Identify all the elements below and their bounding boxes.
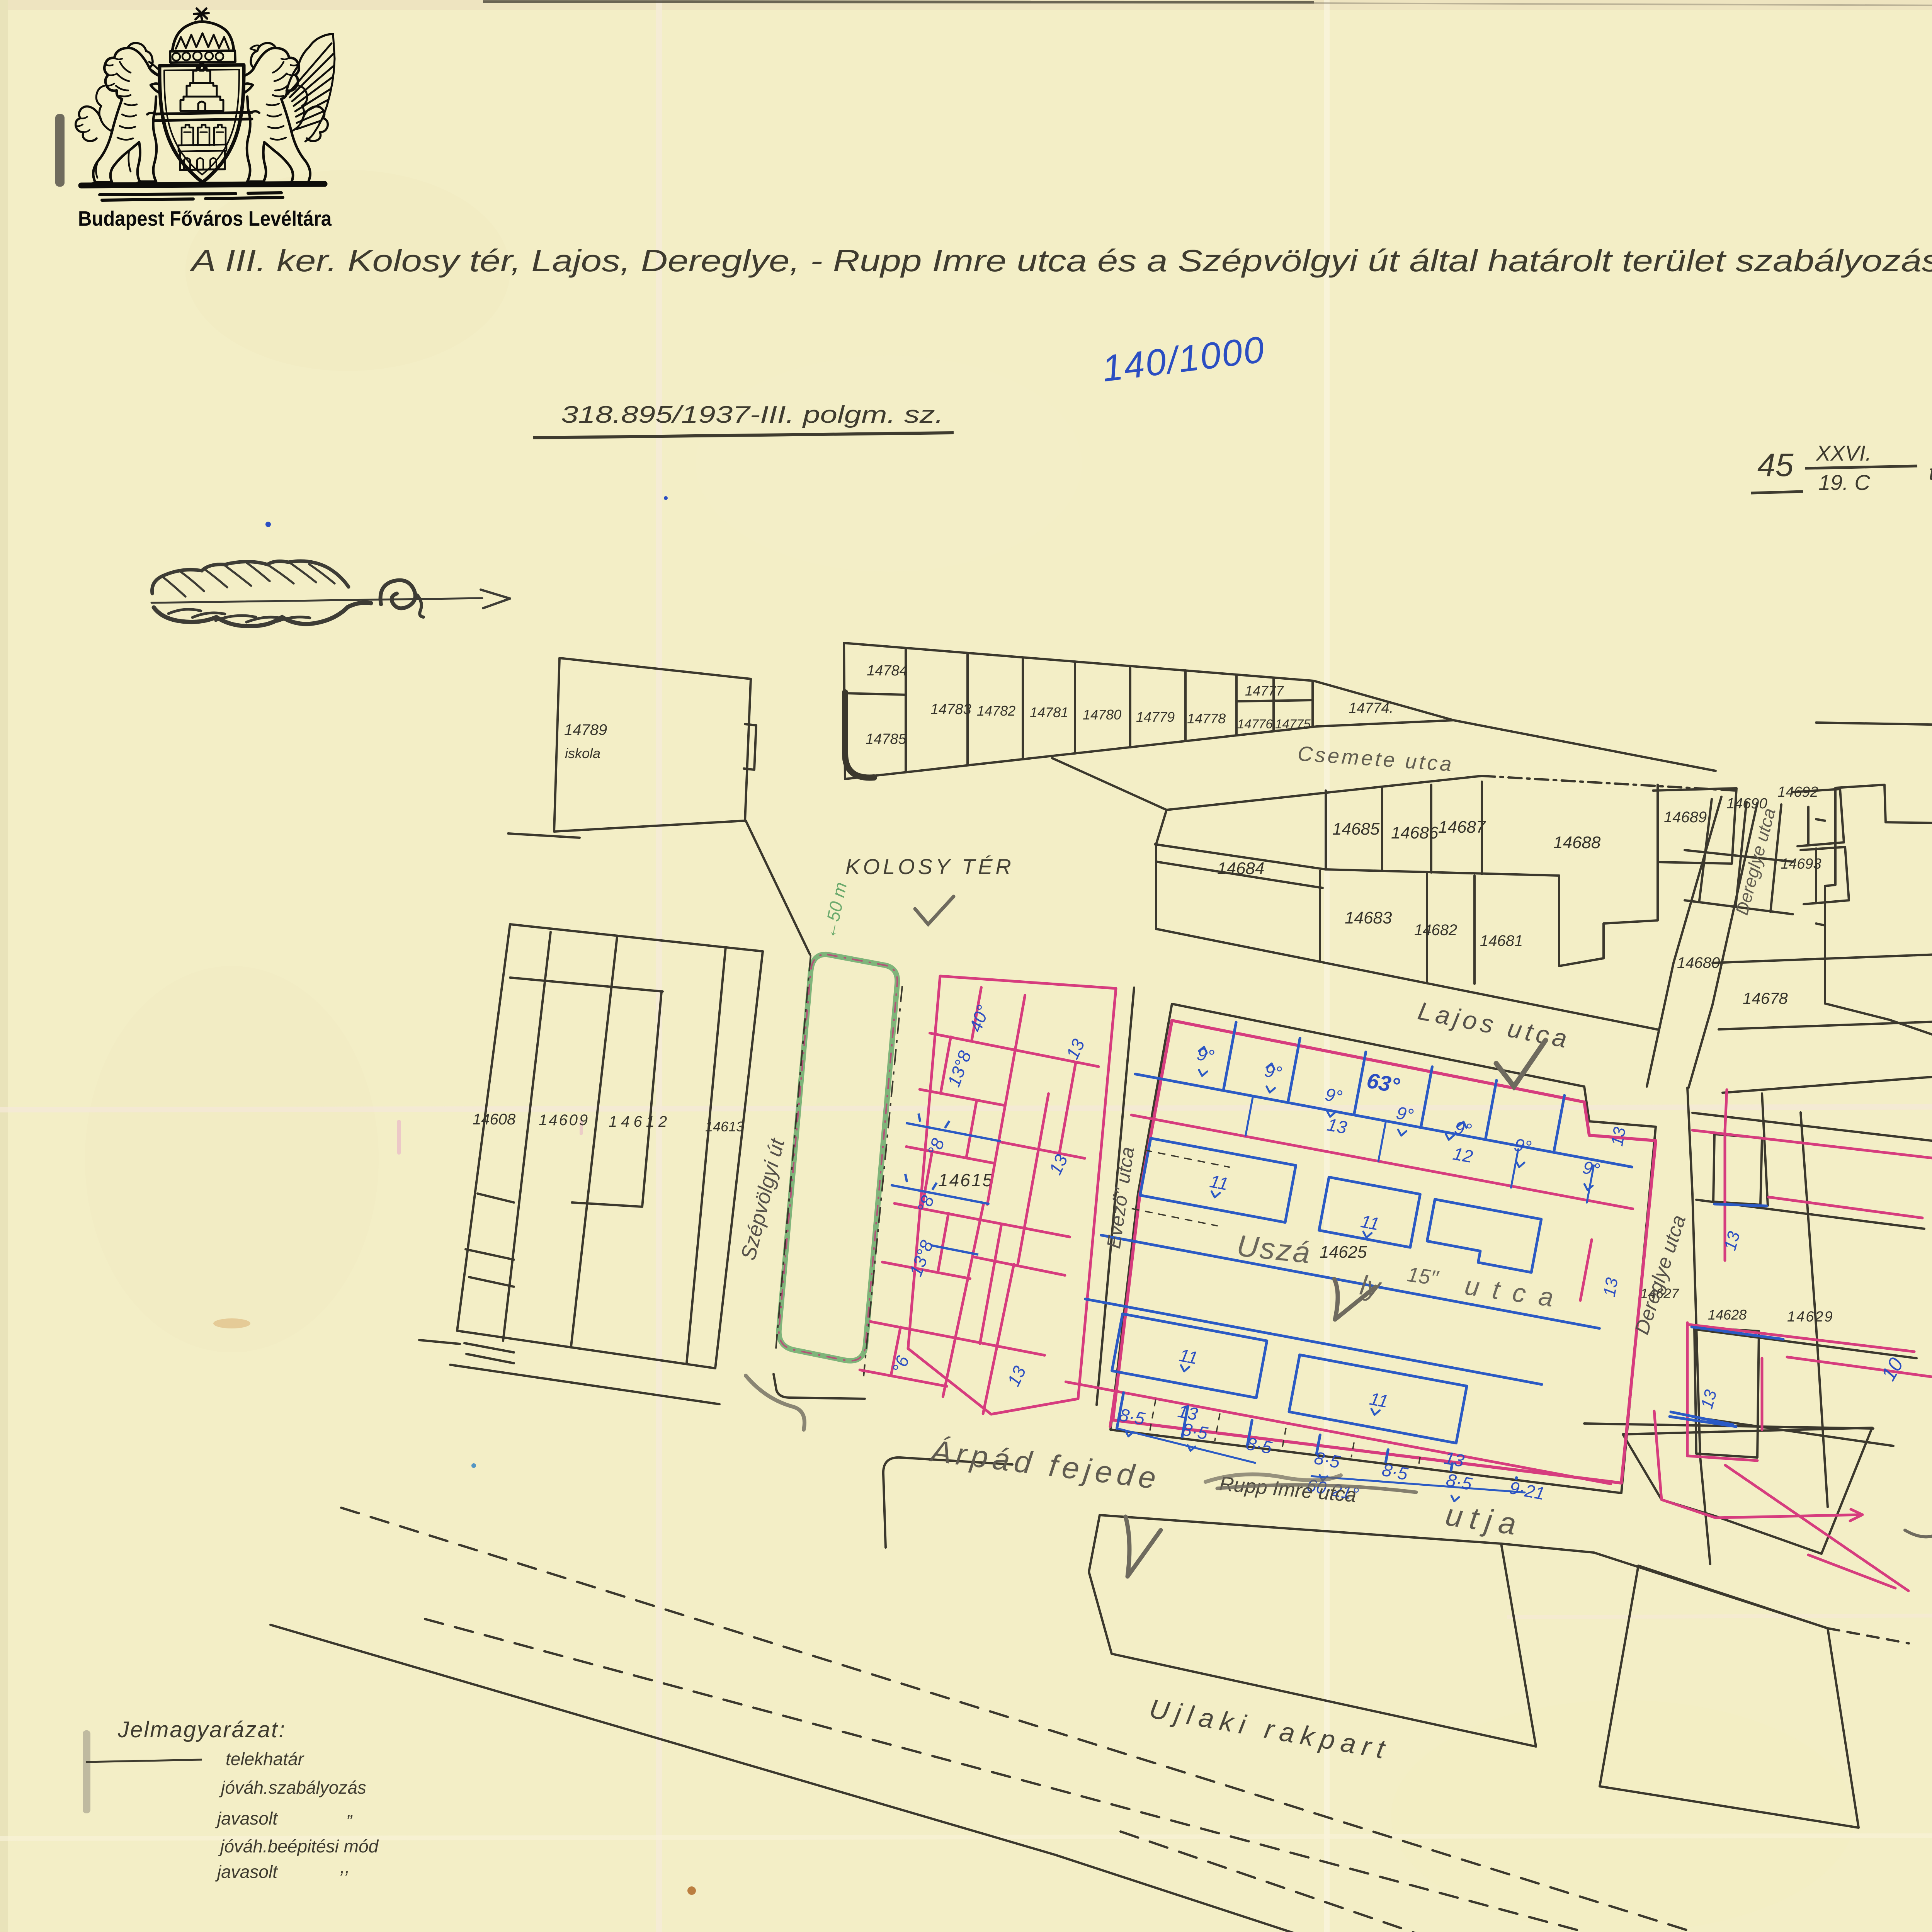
svg-text:XXVI.: XXVI.: [1815, 441, 1871, 465]
svg-text:KOLOSY TÉR: KOLOSY TÉR: [845, 854, 1014, 879]
svg-text:13: 13: [1325, 1114, 1349, 1138]
svg-text:14613: 14613: [705, 1119, 744, 1134]
svg-text:14789: 14789: [564, 721, 607, 738]
svg-text:14680: 14680: [1677, 954, 1720, 971]
svg-text:45: 45: [1757, 447, 1794, 483]
svg-text:11: 11: [1178, 1345, 1200, 1368]
svg-text:9°: 9°: [1581, 1157, 1602, 1180]
svg-text:14682: 14682: [1414, 922, 1457, 939]
svg-text:14685: 14685: [1332, 820, 1380, 838]
svg-text:javasolt: javasolt: [215, 1808, 278, 1828]
svg-text:14777: 14777: [1245, 683, 1284, 699]
svg-text:,,: ,,: [340, 1857, 350, 1877]
svg-text:14681: 14681: [1480, 932, 1523, 949]
svg-text:11: 11: [1359, 1211, 1381, 1234]
svg-text:javasolt: javasolt: [215, 1862, 278, 1882]
svg-text:ttsz: ttsz: [1929, 460, 1932, 485]
svg-text:9°: 9°: [1453, 1117, 1473, 1140]
svg-text:14609: 14609: [539, 1112, 589, 1129]
svg-text:9°: 9°: [1513, 1134, 1533, 1157]
svg-text:14785: 14785: [866, 731, 907, 747]
svg-text:14780: 14780: [1083, 707, 1121, 723]
svg-text:14776: 14776: [1237, 717, 1273, 731]
svg-text:14629: 14629: [1787, 1309, 1834, 1325]
svg-text:12: 12: [1451, 1143, 1475, 1167]
svg-text:14687: 14687: [1438, 818, 1486, 837]
svg-text:„: „: [347, 1801, 354, 1821]
svg-text:9°: 9°: [1196, 1044, 1216, 1066]
svg-text:9°: 9°: [1323, 1084, 1344, 1107]
svg-text:9°: 9°: [1395, 1102, 1415, 1125]
svg-text:jóváh.beépitési mód: jóváh.beépitési mód: [218, 1836, 379, 1856]
svg-text:11: 11: [1368, 1388, 1390, 1412]
svg-text:telekhatár: telekhatár: [226, 1749, 304, 1769]
svg-text:13: 13: [1607, 1125, 1629, 1147]
svg-text:14683: 14683: [1345, 908, 1392, 927]
svg-text:11: 11: [1208, 1171, 1230, 1194]
svg-text:14688: 14688: [1553, 833, 1601, 852]
svg-text:jóváh.szabályozás: jóváh.szabályozás: [219, 1777, 366, 1798]
svg-text:14693: 14693: [1781, 856, 1821, 872]
svg-text:13: 13: [1600, 1276, 1622, 1298]
svg-text:14689: 14689: [1664, 809, 1707, 826]
svg-text:14625: 14625: [1320, 1243, 1367, 1262]
svg-text:14778: 14778: [1187, 711, 1226, 726]
svg-text:14608: 14608: [473, 1111, 516, 1128]
svg-text:A III. ker. Kolosy tér, Lajos,: A III. ker. Kolosy tér, Lajos, Dereglye,…: [189, 243, 1932, 278]
svg-text:9°: 9°: [1263, 1060, 1284, 1083]
svg-text:iskola: iskola: [565, 745, 600, 761]
svg-text:13: 13: [1176, 1401, 1199, 1424]
svg-text:14775: 14775: [1275, 717, 1311, 731]
svg-text:14612: 14612: [609, 1113, 671, 1130]
svg-text:Budapest Főváros Levéltára: Budapest Főváros Levéltára: [78, 207, 332, 230]
svg-text:13: 13: [1443, 1447, 1466, 1471]
svg-text:Jelmagyarázat:: Jelmagyarázat:: [117, 1717, 286, 1742]
svg-text:14784: 14784: [867, 663, 908, 679]
svg-text:14678: 14678: [1743, 989, 1788, 1007]
svg-text:14774.: 14774.: [1349, 700, 1393, 716]
svg-text:15′′: 15′′: [1406, 1263, 1440, 1290]
svg-text:14686: 14686: [1391, 823, 1439, 842]
svg-text:14783: 14783: [930, 701, 971, 718]
svg-text:14692: 14692: [1777, 784, 1818, 800]
svg-text:14628: 14628: [1708, 1307, 1747, 1323]
svg-text:318.895/1937-III. polgm. sz.: 318.895/1937-III. polgm. sz.: [561, 401, 944, 428]
svg-text:14781: 14781: [1030, 704, 1068, 720]
svg-text:14684: 14684: [1217, 859, 1264, 878]
svg-text:14782: 14782: [977, 703, 1015, 719]
svg-text:14615: 14615: [938, 1170, 993, 1190]
svg-text:19. C: 19. C: [1818, 470, 1870, 495]
svg-text:14779: 14779: [1136, 709, 1175, 725]
